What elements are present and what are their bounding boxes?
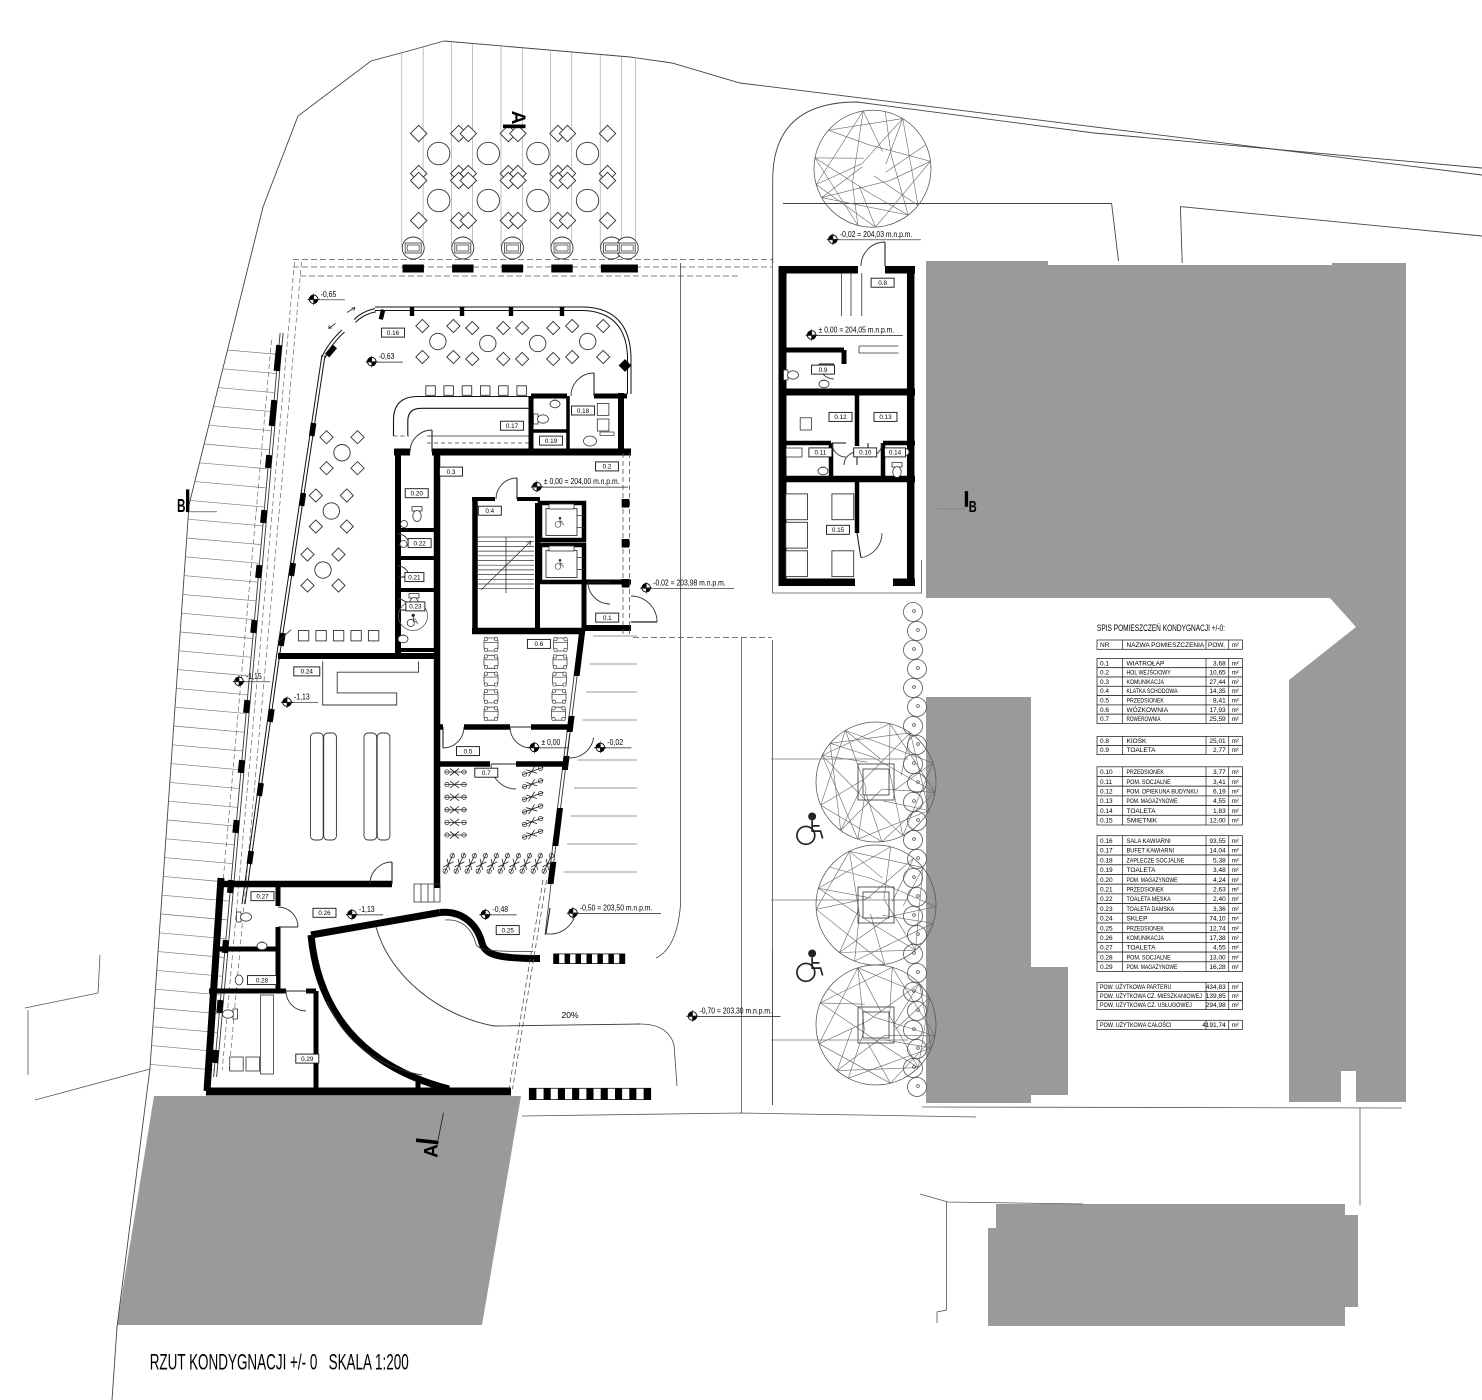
svg-text:-1,15: -1,15 — [246, 671, 262, 681]
svg-text:0.16: 0.16 — [1100, 838, 1113, 845]
svg-text:-0,70 = 203,30 m.n.p.m.: -0,70 = 203,30 m.n.p.m. — [700, 1006, 772, 1016]
svg-text:0.8: 0.8 — [1100, 738, 1109, 745]
svg-text:0.16: 0.16 — [387, 330, 400, 337]
svg-text:0.14: 0.14 — [1100, 808, 1113, 815]
svg-text:0.23: 0.23 — [409, 604, 422, 611]
svg-text:0.27: 0.27 — [1100, 945, 1113, 952]
svg-text:-1,13: -1,13 — [359, 904, 375, 914]
svg-text:2,40: 2,40 — [1213, 896, 1226, 903]
svg-text:4,55: 4,55 — [1213, 798, 1226, 805]
svg-text:m²: m² — [1232, 819, 1239, 825]
svg-text:0.29: 0.29 — [1100, 964, 1113, 971]
svg-text:-0,50 = 203,50 m.n.p.m.: -0,50 = 203,50 m.n.p.m. — [580, 902, 652, 912]
svg-text:14,04: 14,04 — [1209, 848, 1226, 855]
svg-text:3,36: 3,36 — [1213, 906, 1226, 913]
svg-text:m²: m² — [1232, 897, 1239, 903]
svg-text:POW. UŻYTKOWA CZ. USŁUGOWEJ: POW. UŻYTKOWA CZ. USŁUGOWEJ — [1100, 1000, 1192, 1009]
svg-text:POM. SOCJALNE: POM. SOCJALNE — [1127, 779, 1172, 786]
svg-text:0.28: 0.28 — [256, 977, 269, 984]
svg-text:m²: m² — [1232, 965, 1239, 971]
svg-text:m²: m² — [1232, 839, 1239, 845]
svg-text:3,41: 3,41 — [1213, 779, 1226, 786]
svg-text:m²: m² — [1232, 699, 1239, 705]
svg-text:0.18: 0.18 — [577, 408, 590, 415]
svg-text:0.10: 0.10 — [1100, 769, 1113, 776]
svg-text:2,63: 2,63 — [1213, 887, 1226, 894]
svg-text:TOALETA: TOALETA — [1127, 867, 1157, 874]
svg-text:0.7: 0.7 — [482, 770, 491, 777]
svg-text:2,77: 2,77 — [1213, 747, 1226, 754]
svg-text:WIATROŁAP: WIATROŁAP — [1127, 660, 1165, 667]
svg-text:25,01: 25,01 — [1209, 738, 1226, 745]
svg-text:POM. MAGAZYNOWE: POM. MAGAZYNOWE — [1127, 798, 1179, 805]
svg-text:0.13: 0.13 — [879, 414, 892, 421]
svg-text:POW. UŻYTKOWA CZ. MIESZKANIOWE: POW. UŻYTKOWA CZ. MIESZKANIOWEJ — [1100, 991, 1202, 1000]
svg-text:-1,13: -1,13 — [294, 692, 310, 702]
svg-text:POW.: POW. — [1208, 642, 1225, 649]
svg-text:0.7: 0.7 — [1100, 716, 1109, 723]
svg-text:-0,65: -0,65 — [321, 289, 337, 299]
svg-text:0.21: 0.21 — [408, 574, 421, 581]
svg-text:0.17: 0.17 — [506, 423, 519, 430]
svg-text:3,48: 3,48 — [1213, 867, 1226, 874]
svg-text:TOALETA DAMSKA: TOALETA DAMSKA — [1127, 906, 1175, 913]
svg-text:12,00: 12,00 — [1209, 818, 1226, 825]
svg-text:m²: m² — [1232, 661, 1239, 667]
svg-text:0.17: 0.17 — [1100, 848, 1113, 855]
svg-text:0.6: 0.6 — [1100, 707, 1109, 714]
svg-text:0.28: 0.28 — [1100, 954, 1113, 961]
svg-text:0.3: 0.3 — [447, 469, 456, 476]
svg-text:0.22: 0.22 — [413, 540, 426, 547]
svg-text:0.2: 0.2 — [1100, 670, 1109, 677]
svg-text:POM. MAGAZYNOWE: POM. MAGAZYNOWE — [1127, 964, 1179, 971]
svg-text:A: A — [507, 111, 528, 125]
svg-text:m²: m² — [1232, 888, 1239, 894]
svg-text:14,35: 14,35 — [1209, 688, 1226, 695]
svg-text:0.15: 0.15 — [832, 527, 845, 534]
svg-text:-0,02 = 203,98 m.n.p.m.: -0,02 = 203,98 m.n.p.m. — [653, 577, 725, 587]
svg-text:m²: m² — [1232, 985, 1239, 991]
svg-text:0.29: 0.29 — [301, 1056, 314, 1063]
svg-text:m²: m² — [1232, 770, 1239, 776]
svg-text:74,10: 74,10 — [1209, 916, 1226, 923]
svg-text:0.4: 0.4 — [1100, 688, 1109, 695]
svg-text:0.26: 0.26 — [318, 910, 331, 917]
svg-text:0.24: 0.24 — [301, 669, 314, 676]
svg-text:PRZEDSIONEK: PRZEDSIONEK — [1127, 925, 1165, 932]
svg-text:POM. SOCJALNE: POM. SOCJALNE — [1127, 954, 1172, 961]
svg-text:0.9: 0.9 — [819, 367, 828, 374]
svg-text:m²: m² — [1232, 878, 1239, 884]
svg-text:0.12: 0.12 — [1100, 789, 1113, 796]
svg-text:m²: m² — [1232, 1023, 1239, 1029]
svg-text:m²: m² — [1232, 717, 1239, 723]
svg-text:3,68: 3,68 — [1213, 660, 1226, 667]
svg-text:0.18: 0.18 — [1100, 857, 1113, 864]
svg-text:m²: m² — [1232, 946, 1239, 952]
svg-text:0.5: 0.5 — [1100, 698, 1109, 705]
svg-text:WÓZKOWNIA: WÓZKOWNIA — [1127, 705, 1169, 714]
svg-text:RZUT KONDYGNACJI +/- 0 SKALA: RZUT KONDYGNACJI +/- 0 SKALA 1:200 — [150, 1350, 409, 1375]
svg-text:m²: m² — [1232, 790, 1239, 796]
svg-text:m²: m² — [1232, 955, 1239, 961]
svg-text:± 0,00 = 204,05 m.n.p.m.: ± 0,00 = 204,05 m.n.p.m. — [819, 325, 895, 335]
svg-text:17,38: 17,38 — [1209, 935, 1226, 942]
svg-text:TOALETA: TOALETA — [1127, 808, 1157, 815]
svg-text:m²: m² — [1232, 689, 1239, 695]
svg-text:4,55: 4,55 — [1213, 945, 1226, 952]
svg-text:0.1: 0.1 — [603, 615, 612, 622]
svg-text:PRZEDSIONEK: PRZEDSIONEK — [1127, 698, 1165, 705]
svg-text:HOL WEJŚCIOWY: HOL WEJŚCIOWY — [1127, 668, 1172, 677]
svg-text:m²: m² — [1232, 671, 1239, 677]
svg-text:4,24: 4,24 — [1213, 877, 1226, 884]
svg-text:0.14: 0.14 — [889, 450, 902, 457]
svg-text:SPIS POMIESZCZEŃ KONDYGNACJI +: SPIS POMIESZCZEŃ KONDYGNACJI +/-0: — [1097, 623, 1225, 633]
svg-text:12,74: 12,74 — [1209, 925, 1226, 932]
svg-text:m²: m² — [1232, 809, 1239, 815]
svg-text:3,77: 3,77 — [1213, 769, 1226, 776]
svg-text:BUFET KAWIARNI: BUFET KAWIARNI — [1127, 848, 1175, 855]
svg-text:4191,74: 4191,74 — [1202, 1022, 1226, 1029]
svg-text:ZAPLECZE SOCJALNE: ZAPLECZE SOCJALNE — [1127, 857, 1185, 864]
svg-text:0.2: 0.2 — [603, 464, 612, 471]
svg-text:5,38: 5,38 — [1213, 857, 1226, 864]
svg-text:434,83: 434,83 — [1206, 984, 1226, 991]
svg-text:± 0,00 = 204,00 m.n.p.m.: ± 0,00 = 204,00 m.n.p.m. — [544, 476, 620, 486]
svg-text:SKLEP: SKLEP — [1127, 916, 1148, 923]
svg-text:PRZEDSIONEK: PRZEDSIONEK — [1127, 887, 1165, 894]
svg-text:0.6: 0.6 — [535, 641, 544, 648]
svg-text:10,65: 10,65 — [1209, 670, 1226, 677]
svg-text:ROWEROWNIA: ROWEROWNIA — [1127, 716, 1161, 723]
svg-text:0.8: 0.8 — [878, 280, 887, 287]
svg-text:m²: m² — [1232, 748, 1239, 754]
svg-text:POW. UŻYTKOWA PARTERU: POW. UŻYTKOWA PARTERU — [1100, 982, 1172, 991]
svg-text:m²: m² — [1232, 868, 1239, 874]
svg-text:POM. OPIEKUNA BUDYNKU: POM. OPIEKUNA BUDYNKU — [1127, 789, 1199, 796]
svg-text:0.9: 0.9 — [1100, 747, 1109, 754]
svg-text:93,55: 93,55 — [1209, 838, 1226, 845]
svg-text:1,83: 1,83 — [1213, 808, 1226, 815]
svg-text:m²: m² — [1232, 994, 1239, 1000]
svg-text:25,59: 25,59 — [1209, 716, 1226, 723]
svg-text:0.22: 0.22 — [1100, 896, 1113, 903]
svg-text:0.11: 0.11 — [1100, 779, 1113, 786]
svg-text:6,19: 6,19 — [1213, 789, 1226, 796]
svg-text:0.10: 0.10 — [859, 450, 872, 457]
svg-text:m²: m² — [1232, 708, 1239, 714]
svg-text:± 0,00: ± 0,00 — [541, 737, 560, 747]
svg-text:m²: m² — [1232, 858, 1239, 864]
svg-text:KLATKA SCHODOWA: KLATKA SCHODOWA — [1127, 688, 1179, 695]
svg-text:-0,02 = 204,03 m.n.p.m.: -0,02 = 204,03 m.n.p.m. — [840, 229, 912, 239]
svg-text:139,85: 139,85 — [1206, 993, 1226, 1000]
svg-text:0.26: 0.26 — [1100, 935, 1113, 942]
svg-text:m²: m² — [1232, 1003, 1239, 1009]
svg-text:m²: m² — [1232, 643, 1239, 649]
svg-text:17,93: 17,93 — [1209, 707, 1226, 714]
svg-text:8,41: 8,41 — [1213, 698, 1226, 705]
svg-text:m²: m² — [1232, 680, 1239, 686]
svg-text:0.11: 0.11 — [815, 450, 827, 457]
svg-text:KIOSK: KIOSK — [1127, 738, 1148, 745]
svg-text:0.23: 0.23 — [1100, 906, 1113, 913]
svg-text:m²: m² — [1232, 936, 1239, 942]
svg-text:0.20: 0.20 — [1100, 877, 1113, 884]
svg-text:A: A — [422, 1144, 443, 1158]
svg-text:0.5: 0.5 — [464, 748, 473, 755]
svg-text:0.25: 0.25 — [1100, 925, 1113, 932]
svg-text:0.24: 0.24 — [1100, 916, 1113, 923]
svg-text:TOALETA: TOALETA — [1127, 747, 1157, 754]
svg-text:0.21: 0.21 — [1100, 887, 1113, 894]
svg-text:POW. UŻYTKOWA CAŁOŚCI: POW. UŻYTKOWA CAŁOŚCI — [1100, 1020, 1172, 1029]
svg-text:m²: m² — [1232, 917, 1239, 923]
svg-text:B: B — [969, 499, 977, 516]
svg-text:B: B — [177, 496, 186, 516]
svg-text:0.20: 0.20 — [411, 491, 424, 498]
svg-text:m²: m² — [1232, 907, 1239, 913]
svg-text:0.15: 0.15 — [1100, 818, 1113, 825]
svg-text:TOALETA: TOALETA — [1127, 945, 1157, 952]
svg-text:0.19: 0.19 — [1100, 867, 1113, 874]
svg-text:m²: m² — [1232, 780, 1239, 786]
svg-text:ŚMIETNIK: ŚMIETNIK — [1127, 816, 1158, 825]
svg-text:20%: 20% — [561, 1010, 578, 1020]
svg-text:POM. MAGAZYNOWE: POM. MAGAZYNOWE — [1127, 877, 1179, 884]
svg-text:m²: m² — [1232, 739, 1239, 745]
svg-text:m²: m² — [1232, 849, 1239, 855]
svg-text:NAZWA POMIESZCZENIA: NAZWA POMIESZCZENIA — [1127, 642, 1205, 649]
svg-text:0.25: 0.25 — [502, 927, 515, 934]
svg-text:m²: m² — [1232, 799, 1239, 805]
svg-text:0.1: 0.1 — [1100, 660, 1109, 667]
svg-text:0.12: 0.12 — [834, 414, 847, 421]
svg-text:-0,48: -0,48 — [492, 904, 508, 914]
svg-text:0.27: 0.27 — [256, 894, 269, 901]
svg-text:294,98: 294,98 — [1206, 1002, 1226, 1009]
svg-text:0.13: 0.13 — [1100, 798, 1113, 805]
svg-text:0.4: 0.4 — [485, 508, 494, 515]
svg-text:27,44: 27,44 — [1209, 679, 1226, 686]
svg-text:16,28: 16,28 — [1209, 964, 1226, 971]
svg-text:NR: NR — [1100, 642, 1110, 649]
svg-text:0.3: 0.3 — [1100, 679, 1109, 686]
svg-text:KOMUNIKACJA: KOMUNIKACJA — [1127, 679, 1165, 686]
svg-text:SALA KAWIARNI: SALA KAWIARNI — [1127, 838, 1171, 845]
svg-text:13,00: 13,00 — [1209, 954, 1226, 961]
svg-text:m²: m² — [1232, 926, 1239, 932]
svg-text:0.19: 0.19 — [545, 438, 558, 445]
svg-text:TOALETA MĘSKA: TOALETA MĘSKA — [1127, 896, 1172, 903]
svg-text:PRZEDSIONEK: PRZEDSIONEK — [1127, 769, 1165, 776]
svg-text:-0,63: -0,63 — [379, 351, 395, 361]
svg-text:KOMUNIKACJA: KOMUNIKACJA — [1127, 935, 1165, 942]
svg-text:-0,02: -0,02 — [607, 737, 623, 747]
